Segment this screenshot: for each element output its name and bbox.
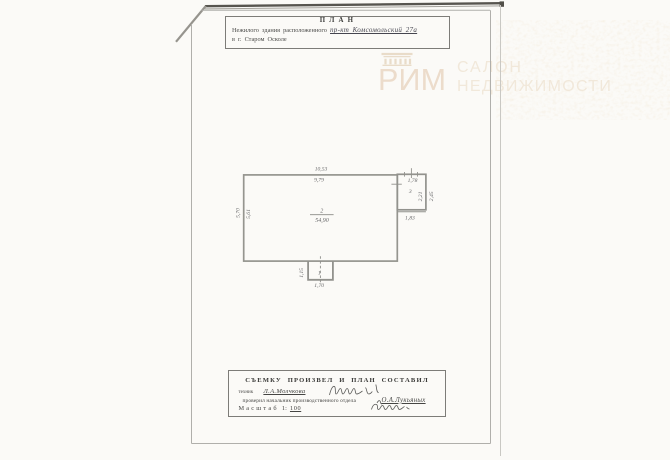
svg-text:1,15: 1,15: [299, 268, 305, 278]
svg-text:2,45: 2,45: [429, 191, 435, 201]
svg-text:2: 2: [320, 209, 323, 215]
svg-text:2,21: 2,21: [418, 191, 424, 201]
svg-text:1: 1: [318, 270, 321, 276]
svg-text:1,70: 1,70: [314, 283, 324, 289]
svg-text:1,78: 1,78: [408, 178, 418, 184]
svg-text:3: 3: [408, 189, 412, 195]
svg-text:10,53: 10,53: [315, 167, 328, 173]
svg-text:1,83: 1,83: [405, 215, 415, 221]
svg-text:5,70: 5,70: [236, 208, 242, 218]
svg-text:54,90: 54,90: [315, 217, 329, 224]
svg-text:9,79: 9,79: [314, 178, 324, 184]
svg-text:5,61: 5,61: [246, 209, 252, 219]
